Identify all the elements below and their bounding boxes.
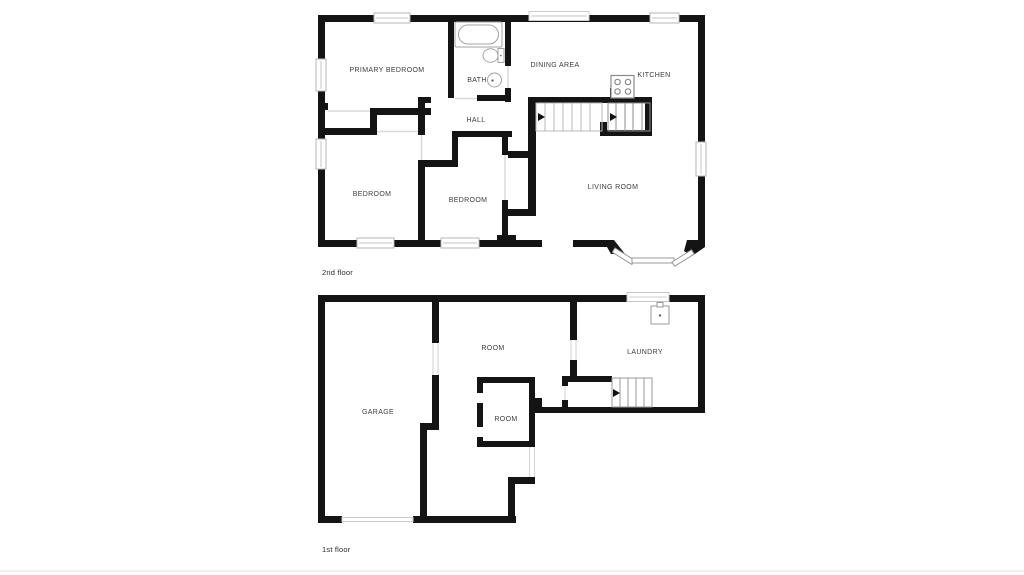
bay-window-icon [603,240,705,266]
label-kitchen: KITCHEN [637,72,670,79]
first-floor-plan: GARAGE ROOM ROOM LAUNDRY 1st floor [318,293,705,555]
label-garage: GARAGE [362,409,394,416]
bathtub-icon [459,25,499,44]
label-hall: HALL [467,117,486,124]
label-bedroom-center: BEDROOM [449,197,488,204]
washer-icon [651,303,669,325]
floorplan-drawing: PRIMARY BEDROOM BATH DINING AREA KITCHEN… [0,0,1024,575]
label-dining-area: DINING AREA [531,62,580,69]
stove-icon [611,76,634,99]
label-living-room: LIVING ROOM [588,184,639,191]
garage-door-icon [342,518,413,522]
label-room-inner: ROOM [494,416,517,423]
first-floor-window [627,293,669,302]
sink-icon [488,73,502,87]
caption-2nd-floor: 2nd floor [322,268,353,277]
label-laundry: LAUNDRY [627,349,663,356]
second-floor-plan: PRIMARY BEDROOM BATH DINING AREA KITCHEN… [316,12,706,278]
floorplan-page: PRIMARY BEDROOM BATH DINING AREA KITCHEN… [0,0,1024,575]
stairs-icon [536,103,650,131]
label-room-top: ROOM [481,345,504,352]
label-primary-bedroom: PRIMARY BEDROOM [349,67,424,74]
label-bath: BATH [467,77,487,84]
label-bedroom-left: BEDROOM [353,191,392,198]
toilet-icon [483,49,504,63]
caption-1st-floor: 1st floor [322,545,351,554]
stairs-icon [612,378,652,407]
